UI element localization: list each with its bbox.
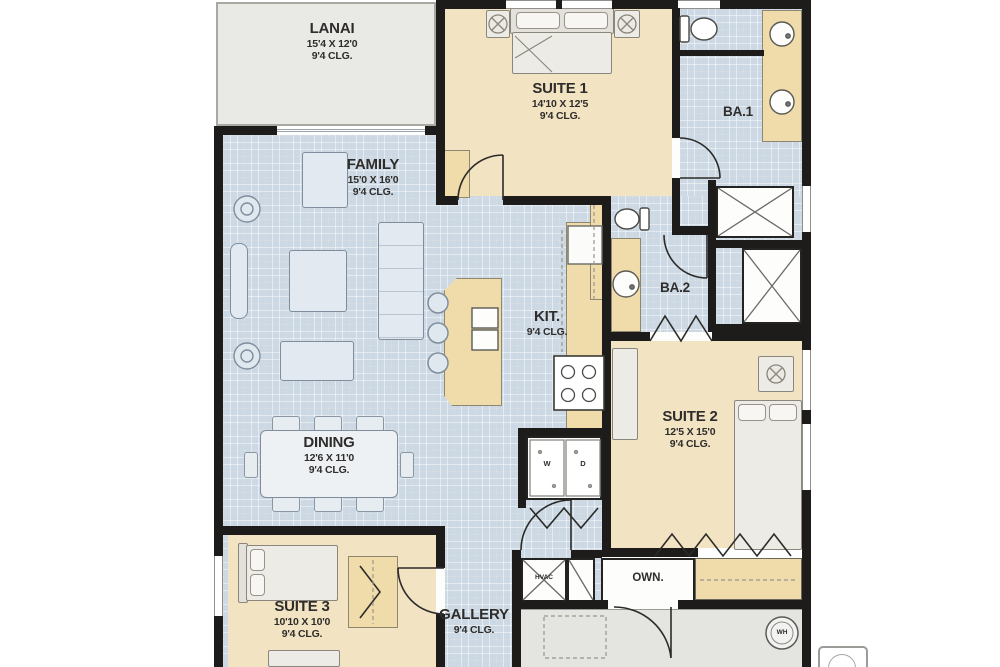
ba2-sink	[613, 271, 639, 297]
washer-dryer	[530, 440, 600, 496]
faucet	[630, 285, 634, 289]
hvac-label: HVAC	[521, 574, 567, 581]
ba2-shower-x	[744, 250, 800, 322]
suite2-closet-bifold	[655, 534, 791, 556]
lanai-label: LANAI 15'4 X 12'0 9'4 CLG.	[307, 20, 358, 62]
storage-diagonal	[569, 560, 593, 600]
toilet-tank	[640, 208, 649, 230]
room-clg: 9'4 CLG.	[347, 186, 399, 198]
bed-fold-line	[515, 36, 552, 72]
ba2-label: BA.2	[660, 280, 690, 296]
room-name: BA.1	[723, 104, 753, 119]
kitchen-appliances	[428, 226, 604, 410]
ba1-sink	[770, 90, 794, 114]
room-dims: 12'5 X 15'0	[662, 426, 717, 438]
washer-label: W	[535, 459, 559, 468]
toilet-bowl	[615, 209, 639, 229]
stove	[554, 356, 604, 410]
ba2-door	[664, 235, 707, 278]
floorplan-page: LANAI 15'4 X 12'0 9'4 CLG. SUITE 1 14'10…	[0, 0, 1000, 667]
room-clg: 9'4 CLG.	[307, 50, 358, 62]
garage-attic-access	[544, 616, 606, 658]
suite2-label: SUITE 2 12'5 X 15'0 9'4 CLG.	[662, 408, 717, 450]
faucet	[786, 34, 790, 38]
stool	[428, 323, 448, 343]
dryer	[566, 440, 600, 496]
ba1-shower-x	[718, 188, 792, 236]
room-name: SUITE 2	[662, 408, 717, 426]
faucet	[786, 102, 790, 106]
room-dims: 15'0 X 16'0	[347, 174, 399, 186]
room-dims: 14'10 X 12'5	[532, 98, 588, 110]
plan-annotations	[210, 0, 812, 667]
ba1-door	[680, 138, 720, 178]
stool	[428, 293, 448, 313]
room-clg: 9'4 CLG.	[662, 438, 717, 450]
room-clg: 9'4 CLG.	[274, 628, 330, 640]
suite3-door	[398, 568, 444, 614]
gallery-label: GALLERY 9'4 CLG.	[439, 606, 509, 636]
family-label: FAMILY 15'0 X 16'0 9'4 CLG.	[347, 156, 399, 198]
suite3-label: SUITE 3 10'10 X 10'0 9'4 CLG.	[274, 598, 330, 640]
ba1-sink	[770, 22, 794, 46]
room-name: KIT.	[527, 308, 568, 326]
room-clg: 9'4 CLG.	[527, 326, 568, 338]
floorplan: LANAI 15'4 X 12'0 9'4 CLG. SUITE 1 14'10…	[210, 0, 812, 667]
island-sink	[472, 330, 498, 350]
room-name: FAMILY	[347, 156, 399, 174]
ac-fan-icon	[828, 654, 856, 667]
room-name: BA.2	[660, 280, 690, 295]
kit-label: KIT. 9'4 CLG.	[527, 308, 568, 338]
toilet-bowl	[691, 18, 717, 40]
wh-label: WH	[766, 629, 798, 636]
stool	[428, 353, 448, 373]
suite2-double-door	[650, 316, 712, 341]
island-sink	[472, 308, 498, 328]
toilet-tank	[680, 16, 689, 42]
toilets	[615, 16, 717, 230]
room-name: DINING	[303, 434, 354, 452]
room-name: SUITE 3	[274, 598, 330, 616]
ba1-label: BA.1	[723, 104, 753, 120]
own-label: OWN.	[601, 572, 695, 584]
suite3-closet-bifold	[360, 566, 380, 618]
dining-label: DINING 12'6 X 11'0 9'4 CLG.	[303, 434, 354, 476]
room-clg: 9'4 CLG.	[532, 110, 588, 122]
room-dims: 15'4 X 12'0	[307, 38, 358, 50]
room-dims: 10'10 X 10'0	[274, 616, 330, 628]
room-dims: 12'6 X 11'0	[303, 452, 354, 464]
dashed-details	[373, 205, 796, 658]
room-name: GALLERY	[439, 606, 509, 624]
refrigerator	[568, 226, 602, 264]
suite1-label: SUITE 1 14'10 X 12'5 9'4 CLG.	[532, 80, 588, 122]
room-name: SUITE 1	[532, 80, 588, 98]
room-clg: 9'4 CLG.	[439, 624, 509, 636]
room-clg: 9'4 CLG.	[303, 464, 354, 476]
ac-pad	[818, 646, 868, 667]
speaker-symbols	[234, 196, 260, 369]
dryer-label: D	[571, 459, 595, 468]
sinks	[472, 22, 794, 350]
suite1-door	[458, 155, 503, 200]
washer	[530, 440, 564, 496]
owners-closet-door	[614, 607, 671, 658]
room-name: LANAI	[307, 20, 358, 38]
